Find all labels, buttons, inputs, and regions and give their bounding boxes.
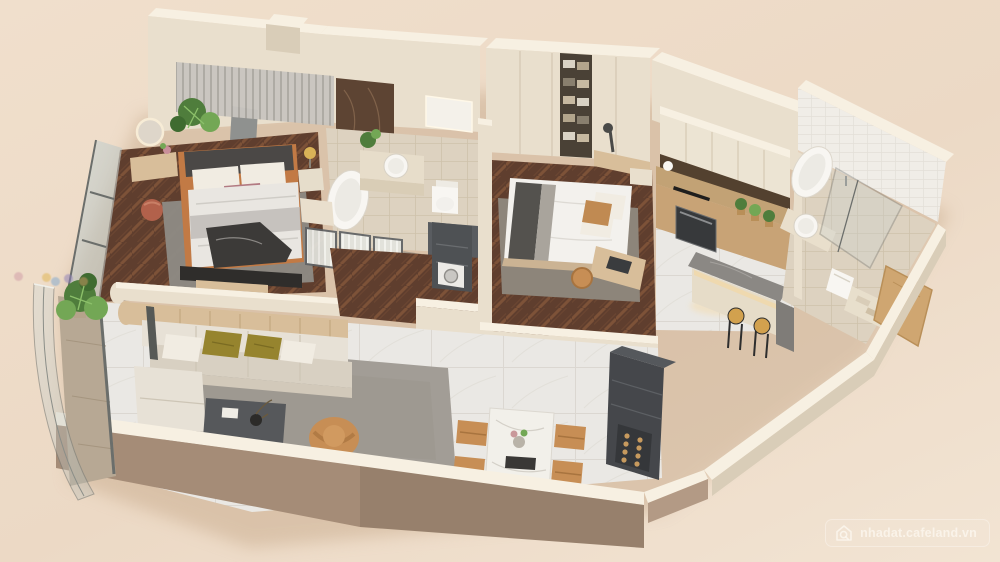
bedroom2-left-wall (478, 118, 492, 334)
brand-dot (64, 274, 73, 283)
floor-plan-render: nhadat.cafeland.vn (0, 0, 1000, 562)
mirror-cabinet (426, 96, 472, 132)
black-kettle (250, 414, 262, 426)
white-pillow (162, 334, 202, 362)
white-pillow (280, 340, 316, 364)
apartment-illustration (0, 0, 1000, 562)
dining-chair (554, 424, 586, 450)
utility-closet (432, 222, 472, 292)
double-bed (178, 144, 304, 272)
desk-chair (572, 268, 592, 288)
storage-cabinets (300, 198, 334, 226)
illuminated-round-mirror (137, 119, 163, 145)
centerpiece-vase (513, 436, 525, 448)
brand-dot (14, 272, 23, 281)
brand-dot (42, 273, 51, 282)
table-lamp (304, 147, 316, 159)
watermark: nhadat.cafeland.vn (825, 519, 990, 547)
olive-pillow (244, 334, 282, 360)
serving-tray (505, 456, 536, 470)
bedroom-2 (478, 38, 660, 382)
desk-lamp (603, 123, 613, 133)
brand-dot (51, 277, 60, 286)
watermark-text: nhadat.cafeland.vn (860, 526, 977, 540)
wardrobe-with-open-shelves (486, 48, 650, 162)
kettle (663, 161, 673, 171)
dining-chair (456, 420, 488, 446)
house-search-icon (835, 524, 853, 542)
nightstand (630, 168, 652, 186)
brand-dot (79, 277, 88, 286)
tan-pillow (582, 200, 612, 226)
